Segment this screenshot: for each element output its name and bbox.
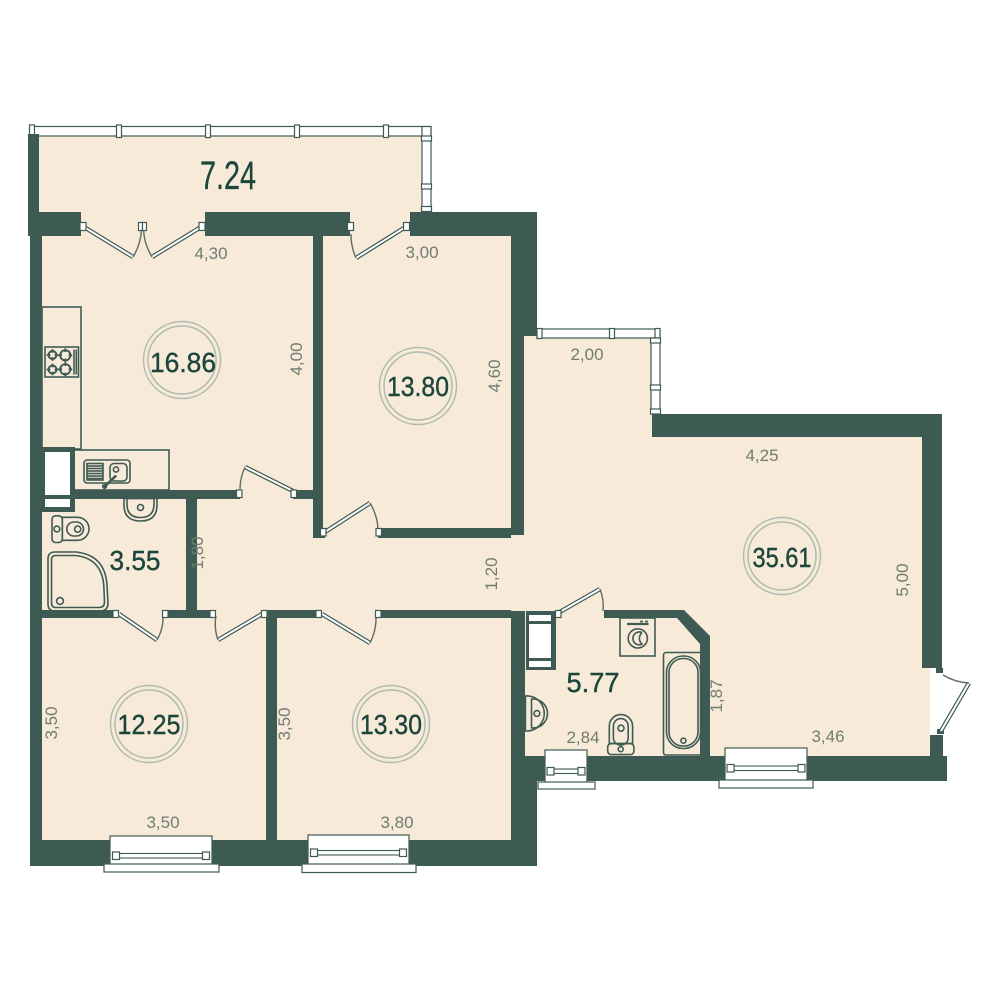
svg-text:3,50: 3,50 <box>146 813 179 832</box>
svg-text:4,25: 4,25 <box>745 446 778 465</box>
svg-text:13.30: 13.30 <box>360 709 422 740</box>
svg-text:3,00: 3,00 <box>405 243 438 262</box>
svg-text:3.55: 3.55 <box>110 545 161 576</box>
svg-text:16.86: 16.86 <box>150 347 216 378</box>
svg-text:1,80: 1,80 <box>188 536 207 569</box>
svg-text:2,00: 2,00 <box>570 345 603 364</box>
svg-text:3,80: 3,80 <box>380 813 413 832</box>
svg-text:4,00: 4,00 <box>287 342 306 375</box>
svg-text:5,00: 5,00 <box>893 563 912 596</box>
svg-text:3,50: 3,50 <box>275 707 294 740</box>
svg-text:1,20: 1,20 <box>482 557 501 590</box>
svg-text:4,60: 4,60 <box>485 359 504 392</box>
svg-text:2,84: 2,84 <box>566 728 599 747</box>
svg-text:5.77: 5.77 <box>567 667 620 698</box>
svg-text:12.25: 12.25 <box>118 709 181 740</box>
svg-text:7.24: 7.24 <box>200 154 256 198</box>
svg-text:4,30: 4,30 <box>194 244 227 263</box>
svg-text:1,87: 1,87 <box>707 679 726 712</box>
svg-text:35.61: 35.61 <box>753 542 812 573</box>
svg-text:3,50: 3,50 <box>42 706 61 739</box>
svg-text:13.80: 13.80 <box>387 371 449 402</box>
svg-text:3,46: 3,46 <box>811 727 844 746</box>
